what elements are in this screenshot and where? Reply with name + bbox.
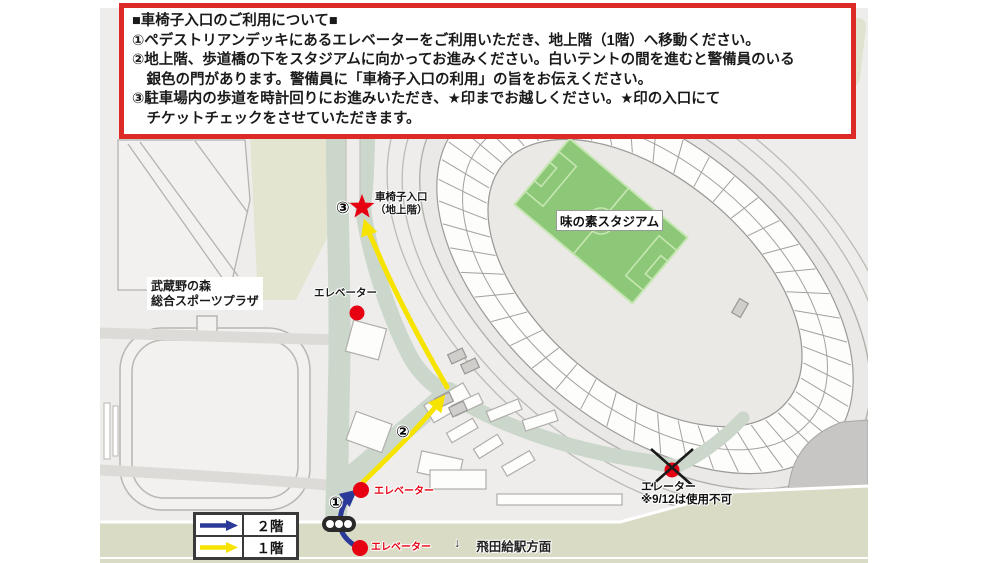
notice-line: チケットチェックをさせていただきます。 — [132, 110, 843, 130]
plaza-building-block — [118, 140, 250, 290]
notice-box: ■車椅子入口のご利用について■ ①ペデストリアンデッキにあるエレベーターをご利用… — [119, 3, 856, 139]
route-step-3-marker: ③ — [336, 198, 350, 218]
legend-1f-arrow — [195, 536, 243, 558]
elevator-closed-name: エレーター — [641, 481, 732, 494]
wheelchair-entrance-label-line2: （地上階） — [375, 204, 428, 217]
legend-1f-label: １階 — [243, 536, 297, 558]
stadium-label: 味の素スタジアム — [556, 210, 663, 231]
wheelchair-entrance-label-line1: 車椅子入口 — [375, 191, 428, 204]
traffic-light-icon — [322, 516, 356, 532]
wheelchair-entrance-label: 車椅子入口 （地上階） — [375, 191, 428, 216]
notice-line: ③駐車場内の歩道を時計回りにお進みいただき、★印までお越しください。★印の入口に… — [132, 90, 843, 110]
plaza-label: 武蔵野の森 総合スポーツプラザ — [147, 277, 263, 310]
elevator-station-dot — [352, 540, 368, 556]
elevator-station-label: エレベーター — [371, 538, 431, 553]
legend-2f-arrow — [195, 514, 243, 536]
down-arrow-icon: ↓ — [454, 536, 460, 555]
station-direction-label: 飛田給駅方面 — [476, 536, 551, 555]
elevator-junction-dot — [353, 482, 369, 498]
blue-arrow-icon — [198, 519, 240, 532]
route-legend: ２階 １階 — [193, 512, 299, 560]
elevator-closed-label: エレーター ※9/12は使用不可 — [641, 481, 732, 506]
plaza-label-line1: 武蔵野の森 — [151, 279, 259, 294]
wheelchair-access-guide: { "notice": { "title": "■車椅子入口のご利用について■"… — [0, 0, 1000, 563]
route-step-1-marker: ① — [329, 493, 343, 513]
station-direction: ↓ 飛田給駅方面 — [454, 536, 551, 555]
yellow-arrow-icon — [198, 541, 240, 554]
notice-title: ■車椅子入口のご利用について■ — [132, 12, 843, 32]
notice-line: ①ペデストリアンデッキにあるエレベーターをご利用いただき、地上階（1階）へ移動く… — [132, 32, 843, 52]
elevator-mid-label: エレベーター — [314, 287, 377, 300]
elevator-closed-note: ※9/12は使用不可 — [641, 494, 732, 507]
route-step-2-marker: ② — [396, 422, 410, 442]
elevator-junction-label: エレベーター — [374, 482, 434, 497]
legend-2f-label: ２階 — [243, 514, 297, 536]
elevator-mid-dot — [350, 306, 365, 321]
plaza-label-line2: 総合スポーツプラザ — [151, 294, 259, 309]
notice-line: ②地上階、歩道橋の下をスタジアムに向かってお進みください。白いテントの間を進むと… — [132, 51, 843, 71]
notice-line: 銀色の門があります。警備員に「車椅子入口の利用」の旨をお伝えください。 — [132, 71, 843, 91]
